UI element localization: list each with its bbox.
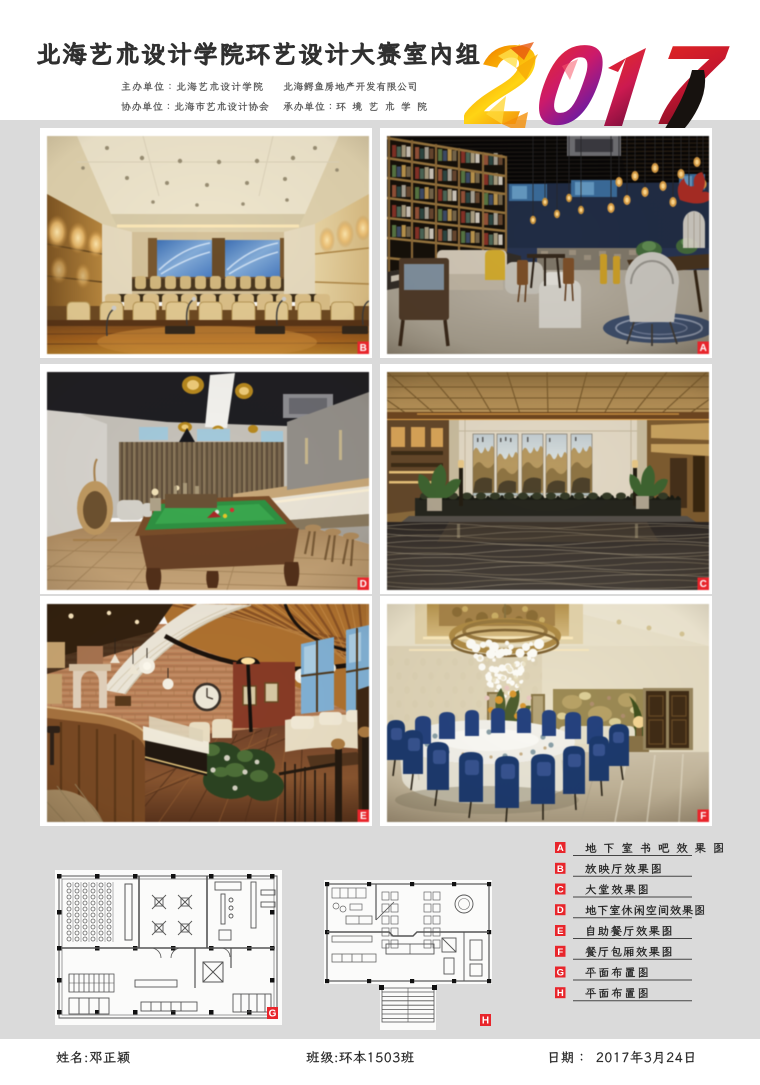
svg-text:E: E <box>360 811 367 822</box>
svg-text:F: F <box>700 811 706 822</box>
svg-text:G: G <box>269 1009 277 1020</box>
svg-text:E: E <box>557 926 563 937</box>
svg-text:G: G <box>557 968 564 979</box>
svg-text:H: H <box>482 1016 489 1027</box>
svg-text:D: D <box>360 579 367 590</box>
svg-text:A: A <box>557 843 564 854</box>
svg-text:B: B <box>360 343 367 354</box>
svg-text:C: C <box>700 579 707 590</box>
svg-text:F: F <box>557 947 563 958</box>
svg-text:D: D <box>557 905 564 916</box>
svg-text:B: B <box>557 864 564 875</box>
svg-text:A: A <box>700 343 707 354</box>
svg-text:H: H <box>557 988 564 999</box>
svg-text:C: C <box>557 885 564 896</box>
